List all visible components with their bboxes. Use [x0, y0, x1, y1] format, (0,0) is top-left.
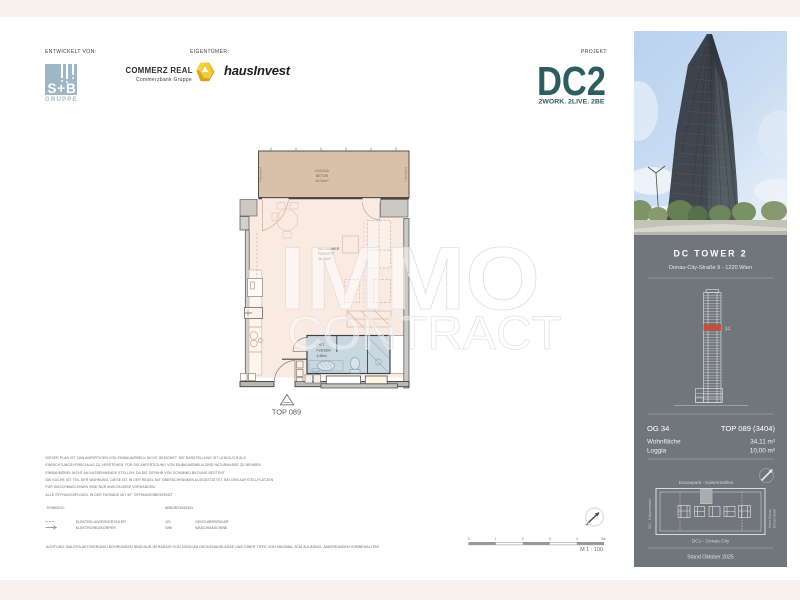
svg-text:3: 3 — [549, 537, 551, 541]
svg-text:10,00 m²: 10,00 m² — [750, 448, 775, 455]
svg-text:34: 34 — [725, 327, 731, 333]
svg-text:Neue Donau: Neue Donau — [768, 509, 772, 528]
svg-text:Stand Oktober 2025: Stand Oktober 2025 — [687, 555, 734, 561]
svg-text:2: 2 — [522, 537, 524, 541]
svg-text:Donau-City-Straße 9 - 1220 Wie: Donau-City-Straße 9 - 1220 Wien — [669, 265, 752, 271]
svg-text:34,11 m²: 34,11 m² — [750, 439, 775, 446]
svg-text:CONTRACT: CONTRACT — [287, 306, 562, 359]
svg-text:Trennwand: Trennwand — [259, 167, 263, 182]
svg-text:LOGGIA: LOGGIA — [315, 169, 329, 173]
svg-text:OG 34: OG 34 — [647, 424, 669, 433]
svg-text:Trennwand: Trennwand — [404, 167, 408, 182]
svg-text:VIC - Kaiserwasser: VIC - Kaiserwasser — [648, 497, 652, 529]
svg-text:DC1 - Donau City: DC1 - Donau City — [692, 539, 730, 545]
svg-text:Wohnfläche: Wohnfläche — [647, 439, 681, 446]
svg-text:DC TOWER 2: DC TOWER 2 — [673, 249, 747, 259]
svg-text:Donaupark - Kaisermühlen: Donaupark - Kaisermühlen — [679, 480, 734, 485]
svg-text:Loggia: Loggia — [647, 448, 667, 455]
svg-text:0: 0 — [468, 537, 470, 541]
svg-text:5m: 5m — [601, 537, 606, 541]
svg-text:BETON: BETON — [316, 174, 329, 178]
svg-text:TOP 089 (3404): TOP 089 (3404) — [721, 424, 776, 433]
svg-text:4: 4 — [576, 537, 578, 541]
svg-text:1: 1 — [495, 537, 497, 541]
svg-text:M 1 : 100: M 1 : 100 — [580, 547, 603, 553]
svg-text:10,00m²: 10,00m² — [315, 179, 329, 183]
svg-text:Donau-Stadt: Donau-Stadt — [773, 509, 777, 528]
svg-text:TOP 089: TOP 089 — [272, 408, 301, 417]
